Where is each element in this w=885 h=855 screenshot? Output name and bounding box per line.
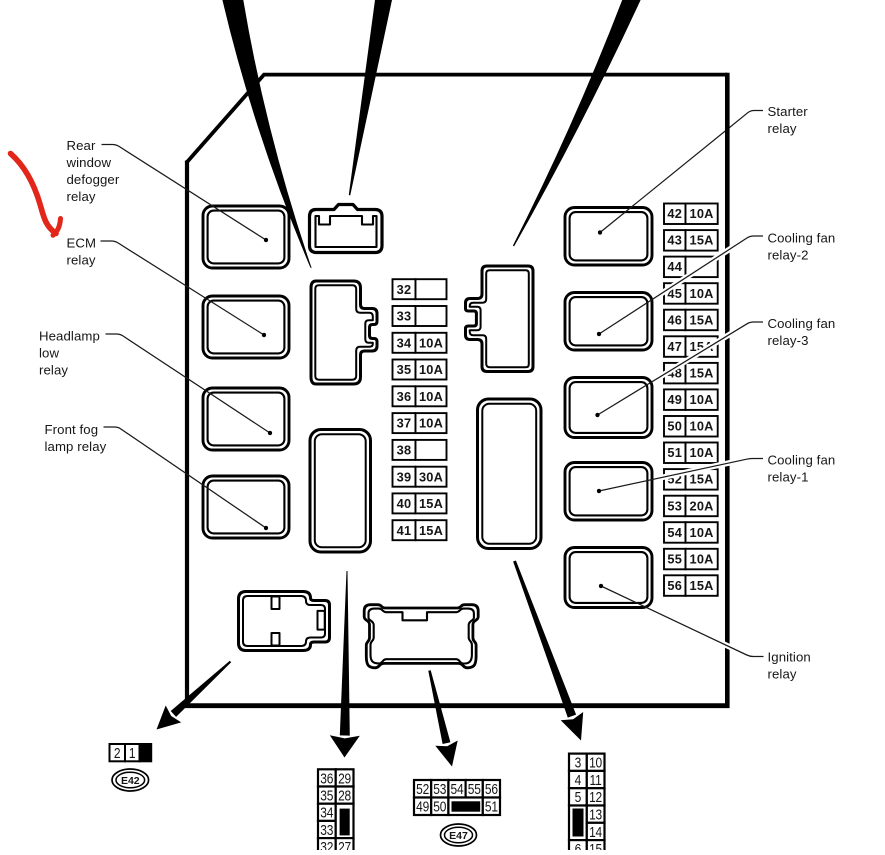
svg-text:33: 33 [397, 309, 412, 324]
svg-text:Starter: Starter [768, 104, 809, 119]
svg-text:35: 35 [397, 362, 412, 377]
svg-text:12: 12 [589, 789, 602, 805]
svg-text:low: low [39, 346, 59, 361]
svg-text:47: 47 [667, 339, 682, 354]
svg-text:43: 43 [667, 233, 682, 248]
svg-text:15A: 15A [690, 578, 714, 593]
svg-text:E47: E47 [449, 830, 468, 842]
svg-text:15A: 15A [690, 366, 714, 381]
svg-text:relay: relay [768, 121, 797, 136]
svg-text:10A: 10A [690, 525, 714, 540]
svg-text:36: 36 [397, 389, 412, 404]
svg-text:10A: 10A [690, 286, 714, 301]
svg-text:50: 50 [433, 798, 446, 814]
svg-text:Cooling fan: Cooling fan [768, 231, 836, 246]
svg-text:ECM: ECM [67, 236, 97, 251]
svg-text:Ignition: Ignition [768, 650, 811, 665]
svg-text:54: 54 [450, 781, 464, 797]
svg-text:34: 34 [320, 805, 334, 821]
svg-text:53: 53 [667, 498, 682, 513]
svg-text:51: 51 [667, 445, 682, 460]
svg-text:14: 14 [589, 824, 603, 840]
svg-text:38: 38 [397, 443, 412, 458]
svg-text:10A: 10A [690, 206, 714, 221]
svg-text:30A: 30A [419, 469, 443, 484]
svg-text:3: 3 [575, 754, 582, 770]
svg-text:32: 32 [397, 282, 412, 297]
svg-text:15A: 15A [690, 312, 714, 327]
svg-text:10A: 10A [690, 445, 714, 460]
svg-text:relay: relay [67, 189, 96, 204]
svg-text:55: 55 [667, 551, 682, 566]
svg-text:lamp relay: lamp relay [45, 439, 107, 454]
svg-text:10: 10 [589, 754, 602, 770]
svg-text:46: 46 [667, 312, 682, 327]
svg-text:6: 6 [575, 841, 582, 850]
svg-text:Front fog: Front fog [45, 422, 99, 437]
svg-text:10A: 10A [419, 335, 443, 350]
svg-text:Headlamp: Headlamp [39, 329, 100, 344]
svg-text:52: 52 [416, 781, 429, 797]
svg-text:15A: 15A [690, 472, 714, 487]
svg-text:50: 50 [667, 419, 682, 434]
svg-text:42: 42 [667, 206, 682, 221]
svg-text:Rear: Rear [67, 138, 96, 153]
svg-text:5: 5 [575, 789, 582, 805]
svg-text:41: 41 [397, 523, 412, 538]
svg-text:relay-2: relay-2 [768, 248, 809, 263]
svg-text:relay: relay [67, 253, 96, 268]
svg-text:10A: 10A [419, 389, 443, 404]
svg-text:39: 39 [397, 469, 412, 484]
svg-text:55: 55 [468, 781, 481, 797]
svg-text:40: 40 [397, 496, 412, 511]
svg-text:56: 56 [485, 781, 498, 797]
svg-text:54: 54 [667, 525, 682, 540]
svg-text:2: 2 [114, 745, 121, 761]
svg-text:defogger: defogger [67, 172, 120, 187]
svg-text:1: 1 [129, 745, 136, 761]
svg-text:Cooling fan: Cooling fan [768, 453, 836, 468]
svg-text:10A: 10A [419, 416, 443, 431]
svg-text:33: 33 [320, 822, 333, 838]
svg-text:53: 53 [433, 781, 446, 797]
svg-text:20A: 20A [690, 498, 714, 513]
svg-text:35: 35 [320, 787, 333, 803]
svg-text:44: 44 [667, 259, 682, 274]
svg-text:27: 27 [338, 839, 351, 850]
svg-text:51: 51 [485, 798, 498, 814]
svg-text:11: 11 [590, 772, 602, 788]
svg-text:15A: 15A [690, 233, 714, 248]
svg-text:37: 37 [397, 416, 412, 431]
svg-text:36: 36 [320, 770, 333, 786]
svg-text:34: 34 [397, 335, 412, 350]
svg-text:window: window [66, 155, 112, 170]
svg-text:49: 49 [667, 392, 682, 407]
svg-text:56: 56 [667, 578, 682, 593]
svg-text:relay: relay [768, 667, 797, 682]
svg-text:10A: 10A [690, 392, 714, 407]
svg-text:28: 28 [338, 787, 351, 803]
svg-text:E42: E42 [121, 775, 140, 787]
svg-text:15A: 15A [419, 523, 443, 538]
svg-text:10A: 10A [419, 362, 443, 377]
svg-text:13: 13 [589, 806, 602, 822]
svg-text:10A: 10A [690, 419, 714, 434]
svg-text:32: 32 [320, 839, 333, 850]
svg-text:49: 49 [416, 798, 429, 814]
svg-text:relay-1: relay-1 [768, 470, 809, 485]
svg-text:29: 29 [338, 770, 351, 786]
svg-text:10A: 10A [690, 551, 714, 566]
svg-text:4: 4 [575, 772, 582, 788]
svg-text:relay-3: relay-3 [768, 333, 809, 348]
svg-text:15A: 15A [419, 496, 443, 511]
svg-text:15: 15 [589, 841, 602, 850]
svg-text:relay: relay [39, 363, 68, 378]
svg-text:Cooling fan: Cooling fan [768, 316, 836, 331]
